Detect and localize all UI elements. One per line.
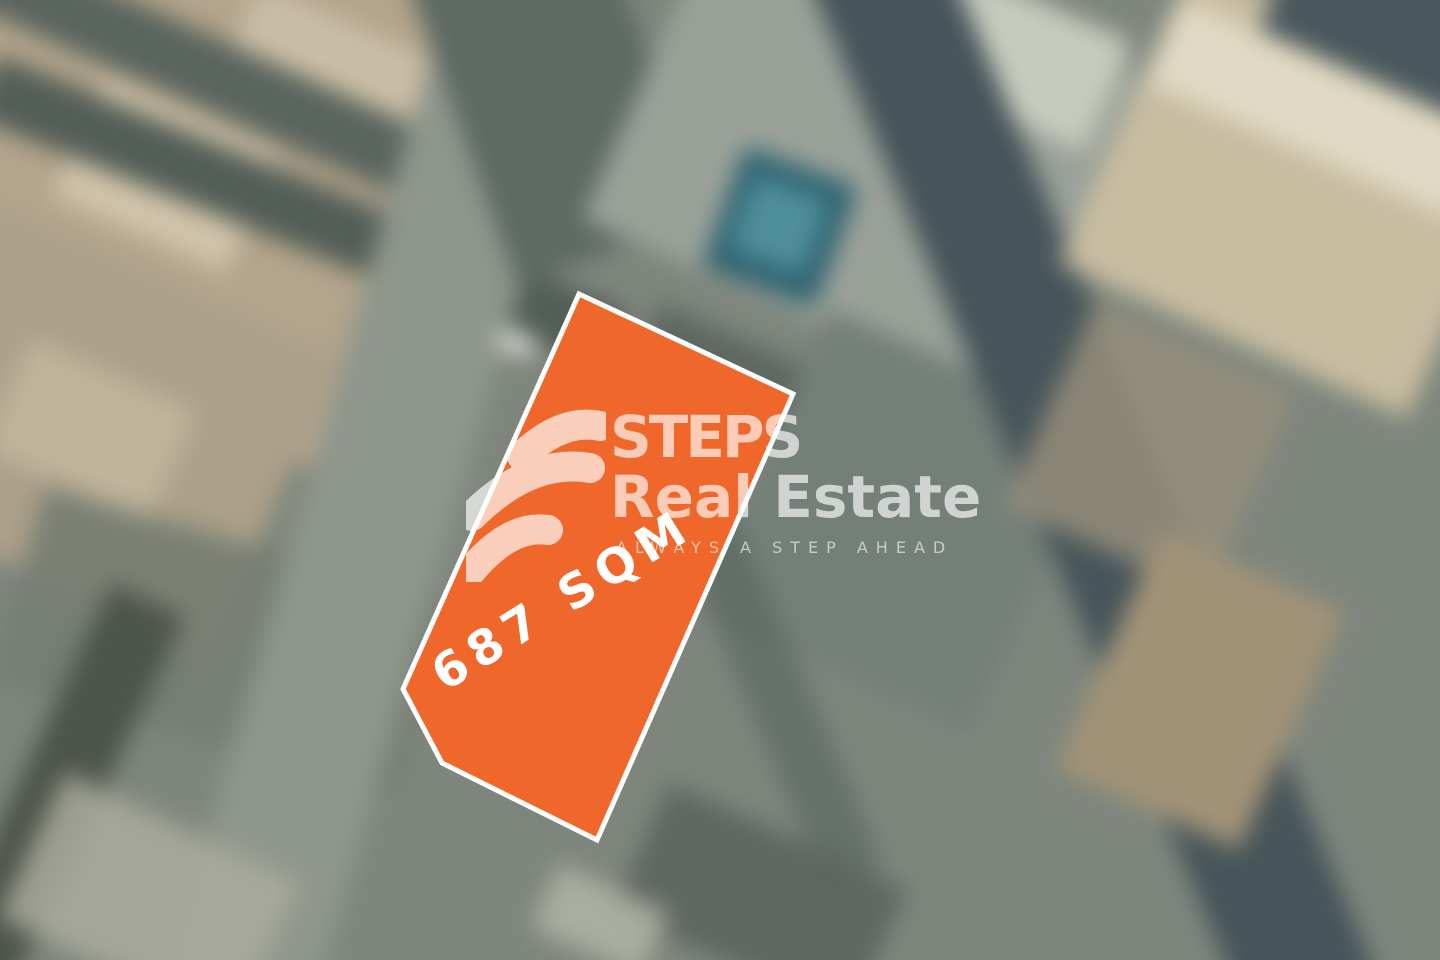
plot-boundary-svg <box>0 0 1440 960</box>
listing-image: STEPS Real Estate ALWAYS A STEP AHEAD 68… <box>0 0 1440 960</box>
